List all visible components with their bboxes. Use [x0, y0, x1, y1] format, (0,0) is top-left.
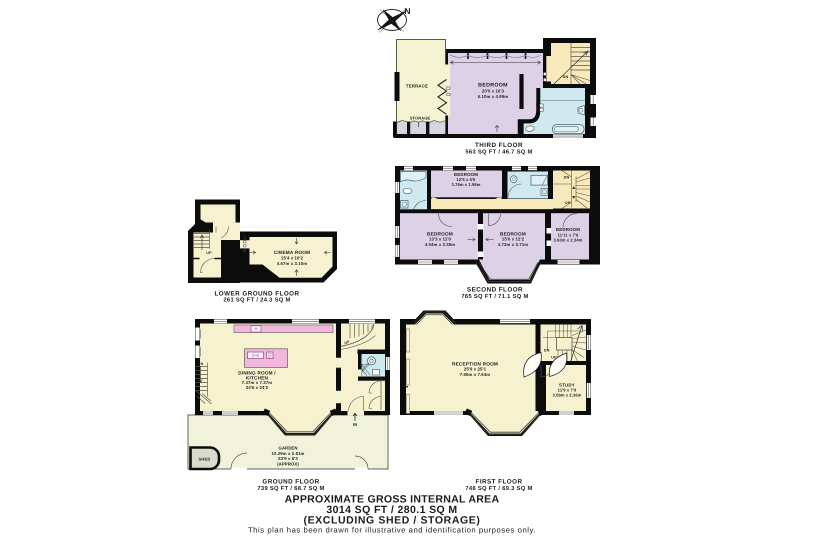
- svg-text:GARDEN: GARDEN: [278, 446, 297, 451]
- svg-text:24'6 x 24'2: 24'6 x 24'2: [246, 385, 269, 390]
- svg-text:TERRACE: TERRACE: [406, 84, 428, 89]
- svg-text:765 SQ FT / 71.1 SQ M: 765 SQ FT / 71.1 SQ M: [461, 293, 528, 300]
- svg-text:7.85m x 7.64m: 7.85m x 7.64m: [460, 372, 491, 377]
- svg-text:3.58m x 2.36m: 3.58m x 2.36m: [552, 393, 581, 398]
- svg-text:6.10m x 4.95m: 6.10m x 4.95m: [478, 94, 509, 99]
- svg-text:DN: DN: [544, 349, 550, 353]
- svg-text:STORAGE: STORAGE: [410, 116, 431, 121]
- svg-text:CINEMA ROOM: CINEMA ROOM: [274, 250, 310, 255]
- svg-text:10.29m x 2.51m: 10.29m x 2.51m: [272, 451, 305, 456]
- svg-text:3.63m x 2.34m: 3.63m x 2.34m: [553, 238, 582, 243]
- svg-text:33'9 x 8'3: 33'9 x 8'3: [278, 456, 298, 461]
- svg-text:746 SQ FT / 69.3 SQ M: 746 SQ FT / 69.3 SQ M: [465, 485, 532, 492]
- svg-text:GROUND FLOOR: GROUND FLOOR: [262, 478, 319, 485]
- svg-text:SHED: SHED: [199, 457, 211, 462]
- svg-text:DN: DN: [198, 362, 204, 366]
- svg-text:261 SQ FT / 24.3 SQ M: 261 SQ FT / 24.3 SQ M: [223, 297, 290, 304]
- svg-text:11'11 x 7'8: 11'11 x 7'8: [558, 232, 579, 237]
- svg-text:UP: UP: [206, 251, 212, 255]
- svg-text:20'0 x 16'3: 20'0 x 16'3: [482, 88, 505, 93]
- svg-text:N: N: [404, 6, 410, 16]
- svg-text:563 SQ FT / 46.7 SQ M: 563 SQ FT / 46.7 SQ M: [465, 149, 532, 156]
- svg-text:4.72m x 3.71m: 4.72m x 3.71m: [498, 242, 529, 247]
- svg-text:BEDROOM: BEDROOM: [556, 227, 580, 232]
- svg-text:FIRST FLOOR: FIRST FLOOR: [476, 478, 523, 485]
- svg-text:4.67m x 3.10m: 4.67m x 3.10m: [277, 261, 308, 266]
- svg-text:THIRD FLOOR: THIRD FLOOR: [475, 142, 523, 149]
- svg-text:(APPROX): (APPROX): [277, 461, 299, 466]
- svg-text:IN: IN: [353, 422, 358, 427]
- svg-text:SECOND FLOOR: SECOND FLOOR: [467, 286, 523, 293]
- svg-text:This plan has been drawn for i: This plan has been drawn for illustrativ…: [248, 526, 536, 535]
- svg-text:4.04m x 3.35m: 4.04m x 3.35m: [425, 242, 456, 247]
- svg-text:LOWER GROUND FLOOR: LOWER GROUND FLOOR: [214, 291, 299, 298]
- svg-text:15'4 x 10'2: 15'4 x 10'2: [281, 255, 304, 260]
- svg-text:DN: DN: [564, 176, 570, 180]
- svg-text:UP: UP: [565, 201, 571, 205]
- svg-text:739 SQ FT / 68.7 SQ M: 739 SQ FT / 68.7 SQ M: [257, 485, 324, 492]
- svg-text:3.78m x 1.98m: 3.78m x 1.98m: [451, 182, 480, 187]
- svg-text:DN: DN: [563, 75, 569, 79]
